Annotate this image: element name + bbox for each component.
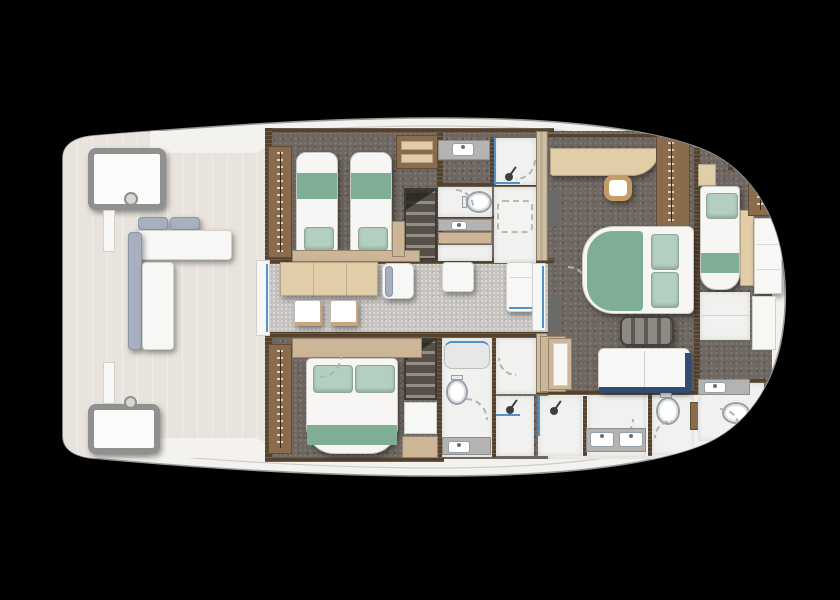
sink xyxy=(451,221,467,230)
twin-bed-right xyxy=(350,152,392,256)
step-cabinet xyxy=(402,436,438,458)
table-seam xyxy=(313,263,314,297)
headboard-shelf xyxy=(292,338,422,358)
chair-cushion xyxy=(385,266,393,297)
support-post-port xyxy=(103,210,115,252)
table-seam xyxy=(346,263,347,297)
deck-fitting-starboard xyxy=(124,396,137,409)
head-cabinet xyxy=(698,164,716,186)
unit-accent xyxy=(509,307,532,309)
shower-room xyxy=(496,396,534,456)
forward-single-berth xyxy=(700,186,740,290)
stool xyxy=(604,175,632,201)
l-sofa-seat-vertical xyxy=(142,262,174,350)
support-post-starboard xyxy=(103,362,115,404)
vanity-desk xyxy=(550,148,660,176)
pillow xyxy=(706,193,738,219)
blanket xyxy=(297,173,337,199)
stair-landing xyxy=(404,402,437,434)
vip-double-bed xyxy=(306,358,398,454)
unit-shelf-line xyxy=(509,277,532,278)
shower-head-icon xyxy=(550,400,564,416)
dinette-table xyxy=(280,262,378,296)
sliding-glass-door xyxy=(266,264,268,332)
shower-pan-dashed xyxy=(497,200,533,233)
stool xyxy=(294,300,322,326)
sofa-seam xyxy=(644,351,645,389)
sink xyxy=(619,432,643,447)
glass-panel xyxy=(494,138,496,185)
glass-panel xyxy=(494,182,520,184)
sofa-back-cushion xyxy=(170,217,200,230)
step-panel xyxy=(752,296,776,350)
hanger-rail-icon xyxy=(668,142,674,222)
blanket xyxy=(307,425,397,445)
shower-head-icon xyxy=(506,399,520,415)
stool xyxy=(330,300,358,326)
step-panels xyxy=(700,292,750,340)
pillow xyxy=(651,272,679,308)
wall-cabinet xyxy=(548,190,562,226)
chair xyxy=(382,263,414,299)
sink xyxy=(590,432,614,447)
deck-fitting-port xyxy=(124,192,138,206)
glass-panel xyxy=(538,396,540,436)
l-sofa-back-vertical xyxy=(128,232,142,350)
sofa-base xyxy=(685,353,691,393)
side-deck-band-top xyxy=(150,131,272,153)
bath-floor xyxy=(438,245,492,261)
yacht-lower-deck-plan xyxy=(0,0,840,600)
twin-bed-left xyxy=(296,152,338,256)
sofa-back-cushion xyxy=(138,217,168,230)
tv-cabinet xyxy=(548,338,572,390)
toilet xyxy=(446,379,468,405)
glass-door-to-master xyxy=(542,266,544,328)
cushion-bench xyxy=(620,316,674,346)
l-sofa-seat-horizontal xyxy=(136,230,232,260)
cabinet-shelf xyxy=(401,141,433,150)
wall xyxy=(268,128,554,133)
sink xyxy=(452,143,474,156)
pillow xyxy=(355,365,395,393)
white-cabinet xyxy=(442,262,474,292)
pillow xyxy=(651,234,679,270)
cabinet-shelf xyxy=(401,154,433,163)
shower-room xyxy=(538,396,582,456)
nightstand xyxy=(740,210,754,286)
blanket xyxy=(587,231,643,311)
tall-unit xyxy=(506,262,534,312)
bench-seam xyxy=(757,269,780,270)
deck-locker-starboard xyxy=(88,404,160,454)
panel-seam xyxy=(702,315,748,316)
sink xyxy=(704,382,726,393)
blanket xyxy=(701,253,739,273)
pillow xyxy=(358,227,388,251)
sofa xyxy=(598,348,690,392)
side-deck-band-bottom xyxy=(150,438,272,458)
nightstand xyxy=(392,221,405,257)
bench-seam xyxy=(757,244,780,245)
pillow xyxy=(304,227,334,251)
wall-cabinet xyxy=(548,298,562,334)
cabinet-front xyxy=(553,343,568,386)
sofa-base xyxy=(599,387,691,393)
sink xyxy=(448,441,470,453)
master-double-bed xyxy=(582,226,694,314)
master-bulkhead xyxy=(536,131,548,261)
hanger-rail-icon xyxy=(277,350,283,448)
bath-cabinet xyxy=(438,232,492,244)
hanger-rail-icon xyxy=(277,152,283,252)
overhead-cabinet xyxy=(396,135,438,169)
glass-shower xyxy=(444,341,490,369)
blanket xyxy=(351,173,391,199)
